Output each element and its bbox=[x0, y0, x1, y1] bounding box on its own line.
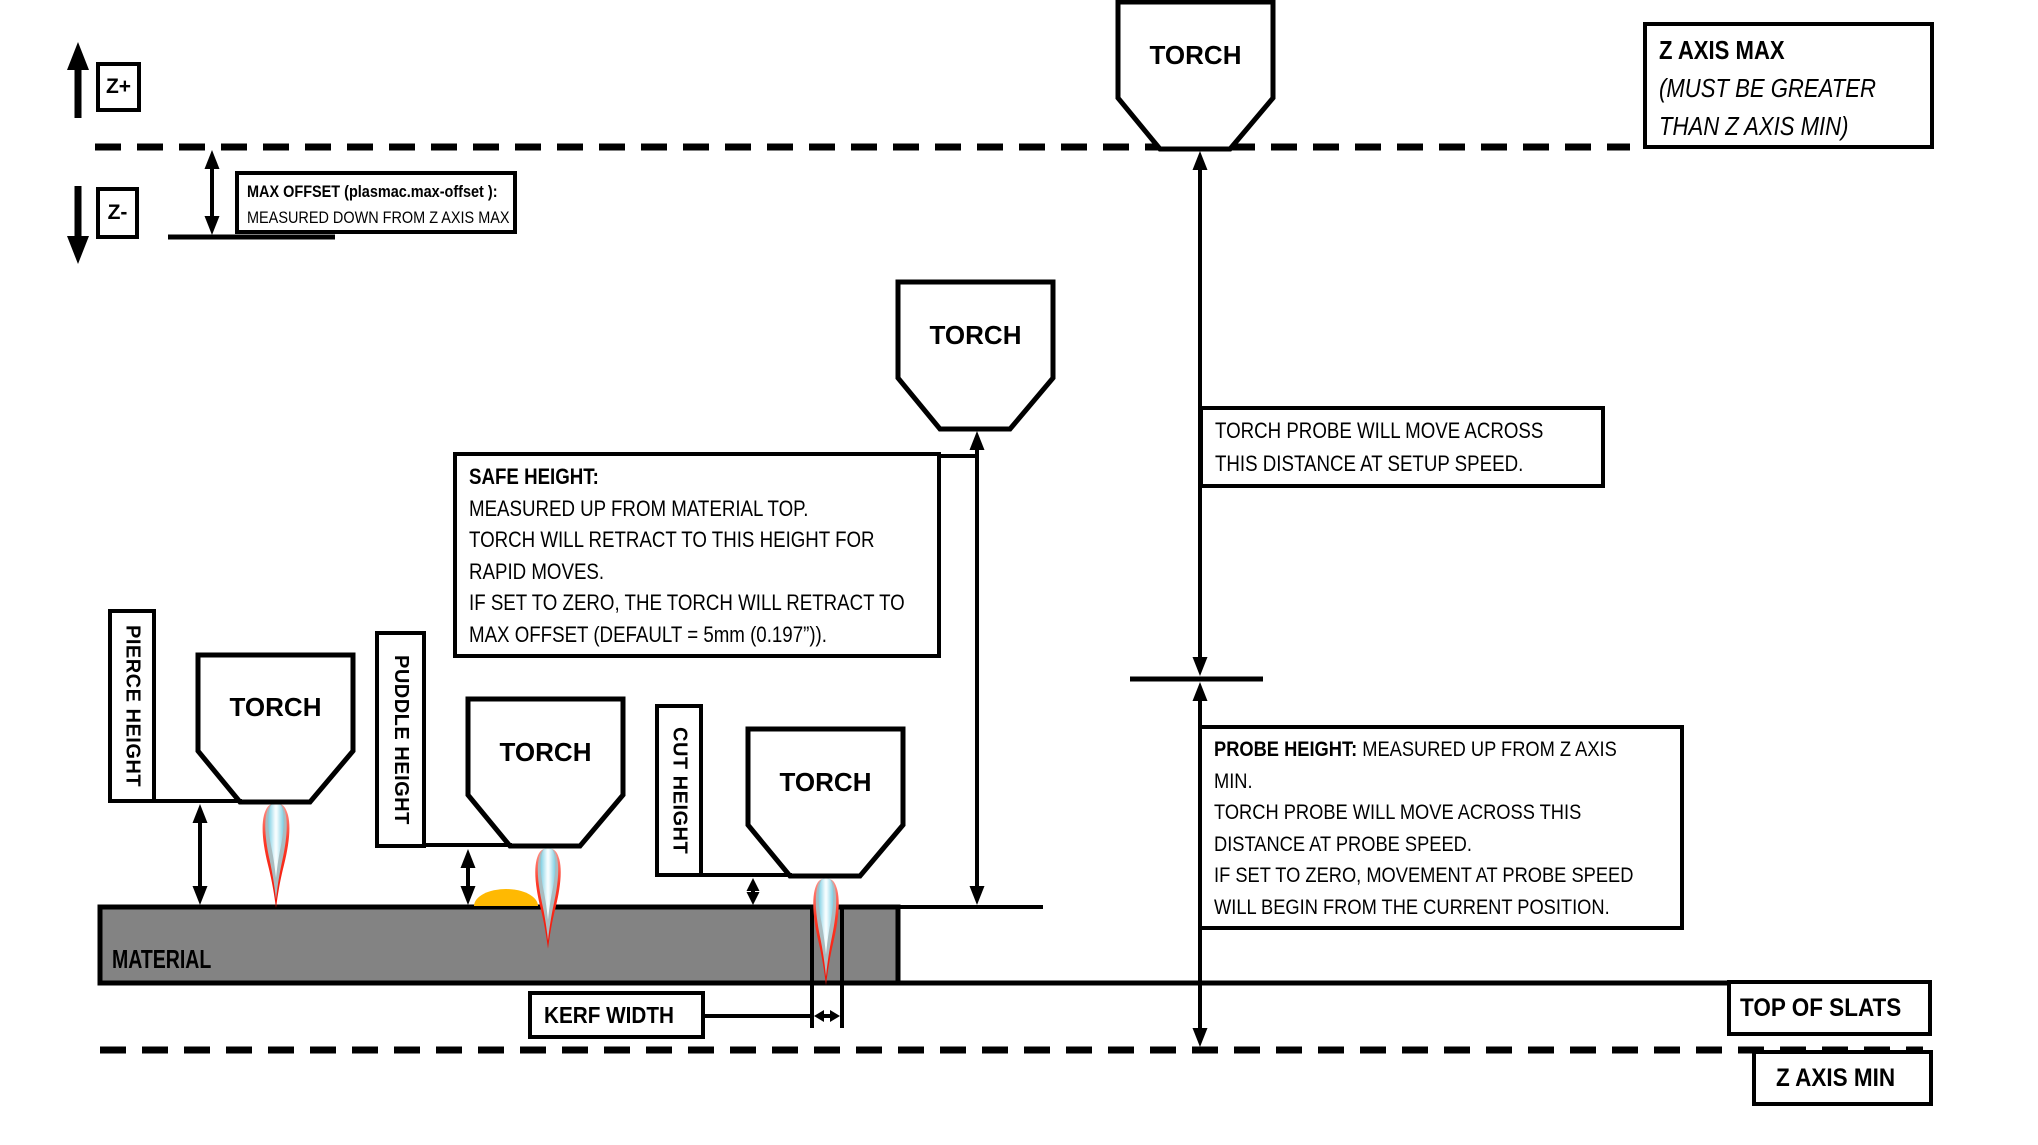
probe-height-line-6: WILL BEGIN FROM THE CURRENT POSITION. bbox=[1214, 892, 1610, 924]
kerf-width-label-box: KERF WIDTH bbox=[528, 991, 705, 1039]
torch-puddle-label: TORCH bbox=[468, 737, 623, 768]
torch-probe-callout: TORCH PROBE WILL MOVE ACROSS THIS DISTAN… bbox=[1199, 406, 1605, 488]
max-offset-body: MEASURED DOWN FROM Z AXIS MAX bbox=[247, 205, 510, 231]
material-label: MATERIAL bbox=[112, 944, 211, 975]
torch-cut bbox=[748, 729, 903, 876]
torch-pierce bbox=[198, 655, 353, 802]
top-of-slats-label-box: TOP OF SLATS bbox=[1727, 980, 1932, 1036]
z-plus-arrow-icon bbox=[67, 42, 89, 118]
max-offset-arrow bbox=[205, 150, 220, 235]
kerf-width-label: KERF WIDTH bbox=[544, 1002, 674, 1029]
safe-height-line-6: MAX OFFSET (DEFAULT = 5mm (0.197”)). bbox=[469, 619, 827, 651]
puddle-height-label-box: PUDDLE HEIGHT bbox=[375, 631, 426, 848]
safe-height-line-2: MEASURED UP FROM MATERIAL TOP. bbox=[469, 493, 808, 525]
puddle-height-label: PUDDLE HEIGHT bbox=[389, 655, 412, 825]
torch-puddle bbox=[468, 699, 623, 846]
z-axis-max-note-1: (MUST BE GREATER bbox=[1659, 69, 1876, 107]
z-minus-label: Z- bbox=[108, 201, 128, 225]
z-plus-label: Z+ bbox=[106, 75, 131, 99]
cut-height-label-box: CUT HEIGHT bbox=[655, 704, 703, 877]
torch-cut-label: TORCH bbox=[748, 767, 903, 798]
cut-height-arrow bbox=[747, 878, 760, 905]
pierce-height-label: PIERCE HEIGHT bbox=[121, 625, 144, 787]
torch-probe-line-1: TORCH PROBE WILL MOVE ACROSS bbox=[1215, 414, 1543, 447]
torch-safe-height-label: TORCH bbox=[898, 320, 1053, 351]
torch-top-label: TORCH bbox=[1118, 40, 1273, 71]
torch-pierce-label: TORCH bbox=[198, 692, 353, 723]
safe-height-line-5: IF SET TO ZERO, THE TORCH WILL RETRACT T… bbox=[469, 587, 905, 619]
plasmac-height-diagram: Z+ Z- MAX OFFSET (plasmac.max-offset ): … bbox=[0, 0, 2038, 1145]
probe-height-line-5: IF SET TO ZERO, MOVEMENT AT PROBE SPEED bbox=[1214, 860, 1633, 892]
probe-height-line-4: DISTANCE AT PROBE SPEED. bbox=[1214, 829, 1472, 861]
safe-height-line-4: RAPID MOVES. bbox=[469, 556, 604, 588]
z-axis-max-title: Z AXIS MAX bbox=[1659, 31, 1785, 69]
pierce-flame-icon bbox=[263, 803, 290, 908]
probe-height-title: PROBE HEIGHT: bbox=[1214, 737, 1357, 761]
z-plus-label-box: Z+ bbox=[96, 62, 141, 112]
puddle-height-arrow bbox=[461, 849, 476, 905]
molten-puddle bbox=[474, 889, 538, 906]
kerf-width-arrow bbox=[814, 1010, 840, 1022]
probe-height-callout: PROBE HEIGHT: MEASURED UP FROM Z AXIS MI… bbox=[1198, 725, 1684, 930]
max-offset-callout: MAX OFFSET (plasmac.max-offset ): MEASUR… bbox=[235, 171, 517, 234]
safe-height-arrow bbox=[970, 431, 985, 905]
probe-height-line-1: MEASURED UP FROM Z AXIS bbox=[1357, 737, 1617, 761]
top-of-slats-label: TOP OF SLATS bbox=[1740, 994, 1901, 1023]
z-axis-max-callout: Z AXIS MAX (MUST BE GREATER THAN Z AXIS … bbox=[1643, 22, 1934, 149]
safe-height-line-3: TORCH WILL RETRACT TO THIS HEIGHT FOR bbox=[469, 524, 875, 556]
z-minus-label-box: Z- bbox=[96, 187, 139, 239]
probe-height-line-3: TORCH PROBE WILL MOVE ACROSS THIS bbox=[1214, 797, 1581, 829]
material-plate bbox=[100, 907, 898, 983]
torch-safe-height bbox=[898, 282, 1053, 429]
torch-probe-line-2: THIS DISTANCE AT SETUP SPEED. bbox=[1215, 447, 1523, 480]
z-minus-arrow-icon bbox=[67, 186, 89, 264]
torch-top bbox=[1118, 2, 1273, 149]
max-offset-title: MAX OFFSET (plasmac.max-offset ): bbox=[247, 179, 498, 205]
z-axis-max-note-2: THAN Z AXIS MIN) bbox=[1659, 107, 1848, 145]
z-axis-min-label: Z AXIS MIN bbox=[1776, 1064, 1895, 1093]
safe-height-callout: SAFE HEIGHT: MEASURED UP FROM MATERIAL T… bbox=[453, 452, 941, 658]
cut-height-label: CUT HEIGHT bbox=[668, 727, 691, 854]
z-axis-min-label-box: Z AXIS MIN bbox=[1752, 1050, 1933, 1106]
safe-height-title: SAFE HEIGHT: bbox=[469, 461, 599, 493]
pierce-height-label-box: PIERCE HEIGHT bbox=[108, 609, 156, 803]
probe-height-line-2: MIN. bbox=[1214, 766, 1253, 798]
pierce-height-arrow bbox=[193, 804, 208, 905]
